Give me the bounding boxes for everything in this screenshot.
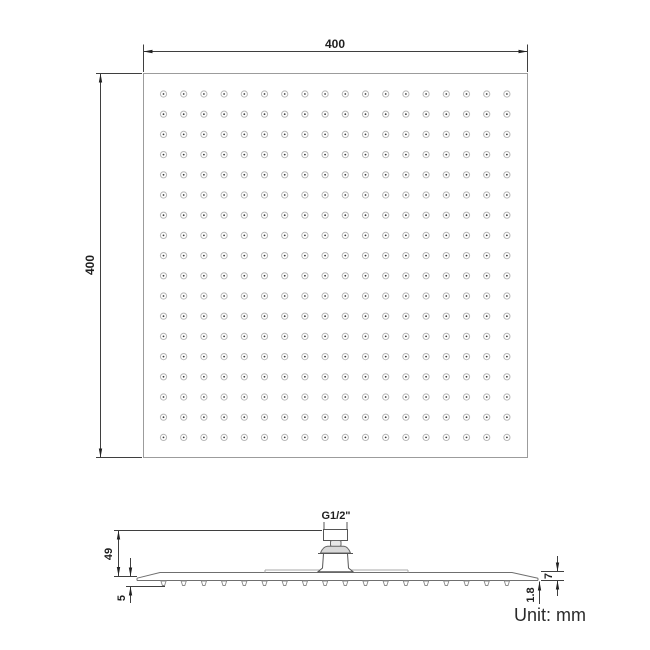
nozzle-dot-icon: [183, 416, 185, 418]
nozzle-dot-icon: [163, 396, 165, 398]
nozzle-dot-icon: [203, 315, 205, 317]
nozzle-dot-icon: [466, 194, 468, 196]
nozzle-dot-icon: [183, 437, 185, 439]
nozzle-dot-icon: [405, 356, 407, 358]
nozzle-dot-icon: [445, 376, 447, 378]
nozzle-dot-icon: [466, 295, 468, 297]
nozzle-dot-icon: [466, 437, 468, 439]
nozzle-dot-icon: [405, 275, 407, 277]
thread-pipe: [324, 530, 348, 541]
nozzle-dot-icon: [304, 154, 306, 156]
nozzle-dot-icon: [385, 315, 387, 317]
nozzle-dot-icon: [405, 295, 407, 297]
nozzle-dot-icon: [243, 275, 245, 277]
nozzle-dot-icon: [486, 194, 488, 196]
nozzle-dot-icon: [365, 315, 367, 317]
nozzle-dot-icon: [425, 336, 427, 338]
nozzle-dot-icon: [324, 336, 326, 338]
nozzle-dot-icon: [264, 336, 266, 338]
arrowhead-down-icon: [99, 449, 102, 458]
nozzle-dot-icon: [425, 113, 427, 115]
nozzle-profile-icon: [424, 581, 429, 586]
nozzle-dot-icon: [445, 255, 447, 257]
nozzle-dot-icon: [243, 174, 245, 176]
arrowhead-up-icon: [117, 531, 120, 540]
nozzle-dot-icon: [486, 315, 488, 317]
nozzle-dot-icon: [264, 194, 266, 196]
nozzle-dot-icon: [344, 396, 346, 398]
nozzle-dot-icon: [264, 376, 266, 378]
nozzle-row: [161, 581, 510, 586]
nozzle-dot-icon: [405, 437, 407, 439]
nozzle-dot-icon: [264, 174, 266, 176]
nozzle-dot-icon: [486, 134, 488, 136]
nozzle-dot-icon: [203, 376, 205, 378]
nozzle-dot-icon: [243, 134, 245, 136]
nozzle-dot-icon: [365, 235, 367, 237]
nozzle-dot-icon: [163, 295, 165, 297]
nozzle-dot-icon: [183, 194, 185, 196]
nozzle-dot-icon: [324, 396, 326, 398]
nozzle-dot-icon: [324, 376, 326, 378]
nozzle-dot-icon: [385, 174, 387, 176]
nozzle-dot-icon: [445, 194, 447, 196]
nozzle-dot-icon: [324, 134, 326, 136]
nozzle-dot-icon: [223, 174, 225, 176]
nozzle-dot-icon: [203, 214, 205, 216]
nozzle-dot-icon: [304, 336, 306, 338]
nozzle-dot-icon: [385, 416, 387, 418]
nozzle-dot-icon: [324, 93, 326, 95]
nozzle-dot-icon: [264, 235, 266, 237]
nozzle-dot-icon: [284, 214, 286, 216]
nozzle-dot-icon: [445, 315, 447, 317]
arrowhead-right-icon: [519, 50, 528, 53]
nozzle-profile-icon: [242, 581, 247, 586]
nozzle-dot-icon: [183, 154, 185, 156]
nozzle-dot-icon: [445, 416, 447, 418]
nozzle-dot-icon: [264, 255, 266, 257]
nozzle-dot-icon: [425, 235, 427, 237]
nozzle-dot-icon: [163, 93, 165, 95]
nozzle-dot-icon: [385, 255, 387, 257]
nozzle-dot-icon: [243, 154, 245, 156]
nozzle-dot-icon: [344, 437, 346, 439]
nozzle-dot-icon: [284, 275, 286, 277]
nozzle-dot-icon: [466, 214, 468, 216]
nozzle-dot-icon: [405, 113, 407, 115]
nozzle-profile-icon: [504, 581, 509, 586]
nozzle-dot-icon: [445, 396, 447, 398]
nozzle-dot-icon: [365, 113, 367, 115]
nozzle-dot-icon: [223, 214, 225, 216]
nozzle-dot-icon: [223, 356, 225, 358]
nozzle-dot-icon: [264, 315, 266, 317]
nozzle-dot-icon: [223, 194, 225, 196]
nozzle-dot-icon: [445, 134, 447, 136]
nozzle-dot-icon: [284, 295, 286, 297]
nozzle-dot-icon: [203, 134, 205, 136]
nozzle-dot-icon: [324, 154, 326, 156]
left-edge-label: 5: [116, 595, 128, 601]
nozzle-dot-icon: [163, 275, 165, 277]
nozzle-dot-icon: [304, 235, 306, 237]
nozzle-dot-icon: [163, 416, 165, 418]
nozzle-dot-icon: [203, 275, 205, 277]
nozzle-dot-icon: [425, 376, 427, 378]
nozzle-dot-icon: [203, 416, 205, 418]
nozzle-dot-icon: [284, 396, 286, 398]
connector-height-label: 49: [103, 548, 115, 560]
nozzle-profile-icon: [464, 581, 469, 586]
nozzle-dot-icon: [385, 356, 387, 358]
nozzle-dot-icon: [385, 376, 387, 378]
nozzle-dot-icon: [163, 113, 165, 115]
nozzle-dot-icon: [486, 295, 488, 297]
nozzle-dot-icon: [243, 93, 245, 95]
nozzle-dot-icon: [365, 134, 367, 136]
nozzle-dot-icon: [284, 356, 286, 358]
nozzle-dot-icon: [284, 134, 286, 136]
nozzle-dot-icon: [243, 396, 245, 398]
nozzle-dot-icon: [425, 295, 427, 297]
nozzle-dot-icon: [284, 437, 286, 439]
nozzle-dot-icon: [344, 134, 346, 136]
nozzle-dot-icon: [344, 194, 346, 196]
nozzle-dot-icon: [425, 356, 427, 358]
nozzle-dot-icon: [445, 235, 447, 237]
nozzle-dot-icon: [405, 235, 407, 237]
nozzle-dot-icon: [183, 275, 185, 277]
nozzle-dot-icon: [445, 295, 447, 297]
nozzle-dot-icon: [163, 174, 165, 176]
nozzle-dot-icon: [304, 93, 306, 95]
nozzle-dot-icon: [486, 396, 488, 398]
nozzle-dot-icon: [506, 275, 508, 277]
nozzle-dot-icon: [203, 295, 205, 297]
nozzle-dot-icon: [284, 154, 286, 156]
nozzle-dot-icon: [284, 174, 286, 176]
nozzle-dot-icon: [506, 356, 508, 358]
nozzle-dot-icon: [344, 255, 346, 257]
nozzle-dot-icon: [405, 174, 407, 176]
nozzle-dot-icon: [486, 93, 488, 95]
nozzle-dot-icon: [466, 93, 468, 95]
nozzle-dot-icon: [405, 315, 407, 317]
nozzle-dot-icon: [425, 194, 427, 196]
connector-body: [318, 554, 353, 572]
nozzle-dot-icon: [243, 356, 245, 358]
nozzle-dot-icon: [445, 214, 447, 216]
nozzle-dot-icon: [223, 416, 225, 418]
nozzle-dot-icon: [163, 437, 165, 439]
nozzle-dot-icon: [344, 336, 346, 338]
nozzle-dot-icon: [163, 315, 165, 317]
nozzle-dot-icon: [304, 356, 306, 358]
nozzle-dot-icon: [183, 376, 185, 378]
nozzle-dot-icon: [203, 93, 205, 95]
nozzle-dot-icon: [223, 396, 225, 398]
nozzle-dot-icon: [163, 194, 165, 196]
nozzle-dot-icon: [223, 134, 225, 136]
nozzle-dot-icon: [486, 154, 488, 156]
nozzle-dot-icon: [365, 437, 367, 439]
nozzle-dot-icon: [405, 154, 407, 156]
nozzle-dot-icon: [304, 174, 306, 176]
side-view: [114, 522, 564, 604]
nozzle-dot-icon: [243, 416, 245, 418]
arrowhead-up-icon: [99, 74, 102, 83]
nozzle-dot-icon: [183, 214, 185, 216]
nozzle-dot-icon: [344, 93, 346, 95]
nozzle-dot-icon: [385, 93, 387, 95]
arrowhead-down-icon: [129, 568, 132, 577]
nozzle-dot-icon: [324, 315, 326, 317]
nozzle-dot-icon: [445, 174, 447, 176]
nozzle-dot-icon: [405, 336, 407, 338]
nozzle-dot-icon: [243, 437, 245, 439]
nozzle-dot-icon: [223, 437, 225, 439]
nozzle-dot-icon: [163, 336, 165, 338]
nozzle-dot-icon: [324, 416, 326, 418]
nozzle-dot-icon: [264, 113, 266, 115]
nozzle-dot-icon: [425, 416, 427, 418]
nozzle-dot-icon: [344, 356, 346, 358]
nozzle-dot-icon: [365, 214, 367, 216]
nozzle-dot-icon: [284, 235, 286, 237]
nozzle-dot-icon: [506, 255, 508, 257]
nozzle-dot-icon: [223, 295, 225, 297]
nozzle-dot-icon: [304, 255, 306, 257]
nozzle-dot-icon: [264, 416, 266, 418]
nozzle-dot-icon: [365, 93, 367, 95]
height-dimension: [96, 74, 142, 458]
nozzle-dot-icon: [506, 235, 508, 237]
nozzle-dot-icon: [425, 214, 427, 216]
nozzle-dot-icon: [365, 336, 367, 338]
nozzle-dot-icon: [223, 113, 225, 115]
nozzle-dot-icon: [486, 356, 488, 358]
nozzle-dot-icon: [243, 194, 245, 196]
nozzle-dot-icon: [304, 295, 306, 297]
nozzle-dot-icon: [304, 396, 306, 398]
nozzle-dot-icon: [183, 255, 185, 257]
nozzle-dot-icon: [304, 315, 306, 317]
nozzle-profile-icon: [181, 581, 186, 586]
arrowhead-down-icon: [556, 563, 559, 572]
nozzle-dot-icon: [385, 437, 387, 439]
panel-thickness-label: 1.8: [525, 587, 537, 602]
nozzle-dot-icon: [324, 437, 326, 439]
nozzle-dot-icon: [284, 416, 286, 418]
nozzle-profile-icon: [282, 581, 287, 586]
nozzle-dot-icon: [425, 315, 427, 317]
nozzle-dot-icon: [243, 336, 245, 338]
nozzle-profile-icon: [201, 581, 206, 586]
nozzle-dot-icon: [183, 315, 185, 317]
nozzle-dot-icon: [466, 356, 468, 358]
nozzle-profile-icon: [444, 581, 449, 586]
nozzle-dot-icon: [223, 255, 225, 257]
nozzle-dot-icon: [264, 134, 266, 136]
nozzle-dot-icon: [183, 93, 185, 95]
nozzle-dot-icon: [365, 396, 367, 398]
nozzle-dot-icon: [365, 275, 367, 277]
nozzle-dot-icon: [486, 416, 488, 418]
arrowhead-left-icon: [144, 50, 153, 53]
nozzle-dot-icon: [466, 113, 468, 115]
nozzle-dot-icon: [365, 416, 367, 418]
nozzle-dot-icon: [445, 93, 447, 95]
nozzle-dot-icon: [506, 134, 508, 136]
nozzle-dot-icon: [304, 134, 306, 136]
nozzle-dot-icon: [466, 255, 468, 257]
nozzle-dot-icon: [284, 194, 286, 196]
nozzle-dot-icon: [445, 336, 447, 338]
nozzle-dot-icon: [486, 376, 488, 378]
nozzle-dot-icon: [506, 376, 508, 378]
nozzle-dot-icon: [223, 93, 225, 95]
nozzle-dot-icon: [284, 93, 286, 95]
nozzle-dot-icon: [425, 437, 427, 439]
nozzle-dot-icon: [304, 437, 306, 439]
nozzle-dot-icon: [344, 275, 346, 277]
nozzle-dot-icon: [486, 255, 488, 257]
nozzle-dot-icon: [264, 214, 266, 216]
nozzle-dot-icon: [486, 235, 488, 237]
nozzle-dot-icon: [304, 376, 306, 378]
nozzle-dot-icon: [243, 315, 245, 317]
nozzle-profile-icon: [222, 581, 227, 586]
top-width-label: 400: [325, 37, 345, 51]
nozzle-profile-icon: [343, 581, 348, 586]
nozzle-dot-icon: [344, 235, 346, 237]
nozzle-dot-icon: [324, 356, 326, 358]
nozzle-dot-icon: [445, 356, 447, 358]
right-edge-label: 7: [543, 573, 555, 579]
nozzle-dot-icon: [506, 194, 508, 196]
swivel-dome: [321, 546, 351, 553]
nozzle-dot-icon: [405, 416, 407, 418]
nozzle-dot-icon: [365, 174, 367, 176]
nozzle-dot-icon: [324, 255, 326, 257]
nozzle-profile-icon: [484, 581, 489, 586]
nozzle-dot-icon: [506, 336, 508, 338]
nozzle-dot-icon: [264, 437, 266, 439]
nozzle-profile-icon: [403, 581, 408, 586]
thread-size-label: G1/2": [321, 510, 350, 522]
nozzle-dot-icon: [344, 113, 346, 115]
nozzle-dot-icon: [385, 113, 387, 115]
nozzle-dot-icon: [405, 396, 407, 398]
connector: [318, 522, 353, 572]
nozzle-dot-icon: [284, 315, 286, 317]
nozzle-dot-icon: [425, 275, 427, 277]
nozzle-dot-icon: [344, 154, 346, 156]
nozzle-dot-icon: [183, 235, 185, 237]
nozzle-dot-icon: [506, 93, 508, 95]
nozzle-dot-icon: [243, 113, 245, 115]
nozzle-dot-icon: [385, 295, 387, 297]
nozzle-dot-icon: [203, 194, 205, 196]
nozzle-profile-icon: [262, 581, 267, 586]
arrowhead-up-icon: [556, 581, 559, 590]
nozzle-dot-icon: [466, 336, 468, 338]
nozzle-dot-icon: [506, 214, 508, 216]
nozzle-dot-icon: [365, 255, 367, 257]
nozzle-dot-icon: [264, 93, 266, 95]
nozzle-profile-icon: [323, 581, 328, 586]
unit-label: Unit: mm: [514, 605, 586, 626]
nozzle-dot-icon: [284, 376, 286, 378]
nozzle-dot-icon: [324, 194, 326, 196]
nozzle-dot-icon: [324, 174, 326, 176]
top-view: [96, 45, 528, 458]
nozzle-dot-icon: [163, 134, 165, 136]
nozzle-dot-icon: [365, 194, 367, 196]
nozzle-dot-icon: [385, 235, 387, 237]
shower-head-drawing: [0, 0, 650, 650]
nozzle-dot-icon: [223, 315, 225, 317]
nozzle-dot-icon: [304, 214, 306, 216]
nozzle-dot-icon: [486, 336, 488, 338]
nozzle-dot-icon: [466, 376, 468, 378]
nozzle-dot-icon: [466, 275, 468, 277]
nozzle-dot-icon: [385, 134, 387, 136]
nozzle-dot-icon: [203, 113, 205, 115]
technical-drawing-page: 400 400 G1/2" 49 5 7 1.8 Unit: mm: [0, 0, 650, 650]
nozzle-dot-icon: [405, 376, 407, 378]
nozzle-dot-icon: [425, 396, 427, 398]
nozzle-dot-icon: [486, 113, 488, 115]
nozzle-dot-icon: [365, 376, 367, 378]
nozzle-dot-icon: [284, 255, 286, 257]
nozzle-dot-icon: [304, 275, 306, 277]
nozzle-dot-icon: [425, 174, 427, 176]
nozzle-dot-icon: [264, 356, 266, 358]
nozzle-dot-icon: [466, 416, 468, 418]
nozzle-dot-icon: [405, 255, 407, 257]
nozzle-dot-icon: [365, 356, 367, 358]
nozzle-dot-icon: [486, 437, 488, 439]
nozzle-dot-icon: [163, 376, 165, 378]
nozzle-dot-icon: [506, 437, 508, 439]
nozzle-dot-icon: [284, 113, 286, 115]
arrowhead-down-icon: [117, 567, 120, 576]
nozzle-profile-icon: [161, 581, 166, 586]
arrowhead-up-icon: [538, 582, 541, 591]
nozzle-dot-icon: [223, 275, 225, 277]
nozzle-dot-icon: [506, 396, 508, 398]
nozzle-dot-icon: [163, 154, 165, 156]
nozzle-dot-icon: [203, 235, 205, 237]
nozzle-dot-icon: [486, 275, 488, 277]
nozzle-dot-icon: [385, 214, 387, 216]
ball-cap: [331, 541, 342, 547]
nozzle-dot-icon: [264, 295, 266, 297]
nozzle-profile-icon: [302, 581, 307, 586]
nozzle-dot-icon: [203, 396, 205, 398]
faceplate-outline: [144, 74, 528, 458]
nozzle-dot-icon: [506, 295, 508, 297]
nozzle-dot-icon: [203, 174, 205, 176]
nozzle-dot-icon: [486, 214, 488, 216]
nozzle-profile-icon: [383, 581, 388, 586]
nozzle-dot-icon: [163, 255, 165, 257]
nozzle-dot-icon: [466, 235, 468, 237]
nozzle-dot-icon: [344, 295, 346, 297]
nozzle-dot-icon: [506, 315, 508, 317]
